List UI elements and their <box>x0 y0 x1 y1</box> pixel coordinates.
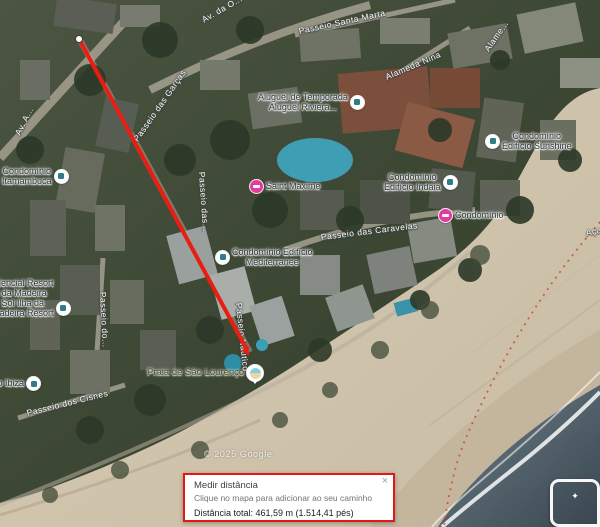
poi-sol-ilha-da-madeira-resort[interactable]: Sol Ilha daMadeira Resort <box>0 298 70 319</box>
building-icon <box>351 96 364 109</box>
poi-condominio-itamambuca[interactable]: CondomínioItamambuca <box>2 166 68 187</box>
street-av-da-o-text: Av. da O... <box>201 0 245 25</box>
close-icon[interactable]: × <box>382 476 388 487</box>
building-icon <box>27 377 40 390</box>
street-passeio-santa-marta-text: Passeio Santa Marta <box>298 9 387 37</box>
poi-aluguel-de-temporada[interactable]: Aluguel de TemporadaAluguel Riviera... <box>258 92 364 113</box>
poi-condominio-edificio-mediterranee-text: Condomínio EdifícioMediterranee <box>232 247 313 268</box>
street-passeio-do-vertical-text: Passeio do... <box>97 292 110 348</box>
poi-condominio-edificio-indaia[interactable]: CondomínioEdifício Indaiá <box>384 172 457 193</box>
street-passeio-dos-cisnes-text: Passeio dos Cisnes <box>26 389 110 419</box>
photo-icon: ✦ <box>571 492 579 501</box>
street-acai-text: Açaí... <box>585 223 600 238</box>
poi-saint-maxime-text: Saint Maxime <box>266 181 321 191</box>
street-passeio-das-garcas-text: Passeio das Garças <box>132 68 189 143</box>
street-passeio-das-vertical: Passeio das... <box>196 172 210 233</box>
lodging-icon <box>250 180 263 193</box>
street-passeio-dos-cisnes: Passeio dos Cisnes <box>26 389 110 419</box>
street-alameda-nina-text: Alameda Nina <box>384 50 442 82</box>
poi-condominio-lodging-text: Condomínio <box>455 210 504 220</box>
poi-praia-de-sao-lourenco[interactable]: Praia de São Lourenço <box>147 365 263 381</box>
street-passeio-das-caravelas-text: Passeio das Caravelas <box>320 221 418 243</box>
measure-dialog-hint: Clique no mapa para adicionar ao seu cam… <box>194 493 384 503</box>
poi-praia-de-sao-lourenco-text: Praia de São Lourenço <box>147 368 244 379</box>
street-passeio-das-vertical-text: Passeio das... <box>196 172 210 233</box>
street-passeio-do-vertical: Passeio do... <box>97 292 110 348</box>
street-passeio-santa-marta: Passeio Santa Marta <box>298 9 387 37</box>
poi-residencial-resort-ilha-da-madeira-text: Residencial ResortIlha da Madeira <box>0 278 54 299</box>
poi-condominio-ibiza-text: Condomínio Ibiza <box>0 378 24 388</box>
street-av-a-fragment-text: Av. A... <box>14 106 36 137</box>
building-icon <box>55 170 68 183</box>
measure-dialog-title: Medir distância <box>194 480 384 491</box>
poi-condominio-ibiza[interactable]: Condomínio Ibiza <box>0 377 40 390</box>
street-av-da-o: Av. da O... <box>201 0 245 25</box>
poi-saint-maxime[interactable]: Saint Maxime <box>250 180 321 193</box>
poi-sol-ilha-da-madeira-resort-text: Sol Ilha daMadeira Resort <box>0 298 54 319</box>
street-passeio-nautico: Passeio Náutico <box>233 302 250 372</box>
street-passeio-das-caravelas: Passeio das Caravelas <box>320 221 418 243</box>
measure-distance-dialog: × Medir distância Clique no mapa para ad… <box>183 473 395 522</box>
lodging-icon <box>439 209 452 222</box>
map-labels: Av. da O...Passeio Santa MartaAlameda Ni… <box>0 0 600 527</box>
building-icon <box>216 251 229 264</box>
building-icon <box>444 176 457 189</box>
street-passeio-nautico-text: Passeio Náutico <box>233 302 250 372</box>
building-icon <box>486 135 499 148</box>
poi-condominio-edificio-sunshine-text: CondomínioEdifício Sunshine <box>502 131 572 152</box>
poi-condominio-itamambuca-text: CondomínioItamambuca <box>2 166 52 187</box>
poi-condominio-lodging[interactable]: Condomínio <box>439 209 504 222</box>
building-icon <box>57 302 70 315</box>
poi-condominio-edificio-mediterranee[interactable]: Condomínio EdifícioMediterranee <box>216 247 313 268</box>
street-acai: Açaí... <box>585 223 600 238</box>
beach-icon <box>247 365 263 381</box>
poi-condominio-edificio-sunshine[interactable]: CondomínioEdifício Sunshine <box>486 131 572 152</box>
photo-preview-thumbnail[interactable]: ✦ <box>550 479 600 527</box>
poi-residencial-resort-ilha-da-madeira[interactable]: Residencial ResortIlha da Madeira <box>0 278 54 299</box>
map-attribution: © 2025 Google <box>204 449 272 459</box>
street-passeio-das-garcas: Passeio das Garças <box>132 68 189 143</box>
street-alameda-nina: Alameda Nina <box>384 50 442 82</box>
satellite-map[interactable]: Av. da O...Passeio Santa MartaAlameda Ni… <box>0 0 600 527</box>
street-alameda-fragment-text: Alame... <box>483 19 511 53</box>
street-av-a-fragment: Av. A... <box>14 106 36 137</box>
street-alameda-fragment: Alame... <box>483 19 511 53</box>
poi-aluguel-de-temporada-text: Aluguel de TemporadaAluguel Riviera... <box>258 92 348 113</box>
poi-condominio-edificio-indaia-text: CondomínioEdifício Indaiá <box>384 172 441 193</box>
distance-total: Distância total: 461,59 m (1.514,41 pés) <box>194 508 384 518</box>
